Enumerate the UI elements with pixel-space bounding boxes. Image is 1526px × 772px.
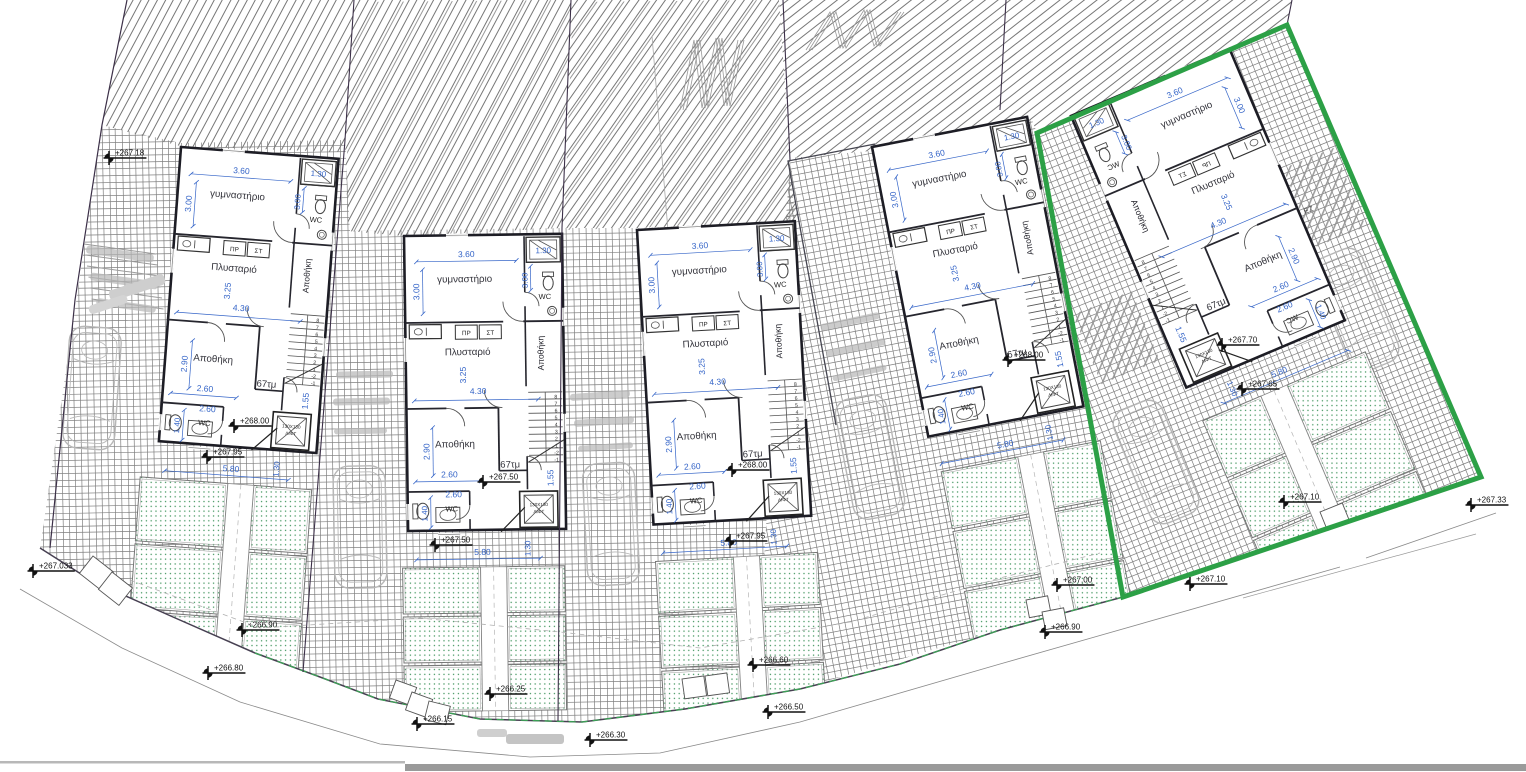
svg-text:1.30: 1.30 bbox=[272, 460, 282, 477]
svg-text:WC: WC bbox=[774, 280, 788, 290]
svg-text:+268.00: +268.00 bbox=[1014, 351, 1044, 360]
svg-text:+266.90: +266.90 bbox=[1051, 623, 1081, 632]
svg-text:67τμ: 67τμ bbox=[500, 459, 520, 470]
svg-text:5.80: 5.80 bbox=[474, 547, 491, 557]
svg-text:+268.00: +268.00 bbox=[738, 461, 768, 470]
svg-text:+267.65: +267.65 bbox=[1248, 380, 1278, 389]
svg-text:+267.50: +267.50 bbox=[489, 473, 519, 482]
svg-text:1.40: 1.40 bbox=[420, 505, 429, 521]
svg-text:130X130: 130X130 bbox=[774, 490, 793, 496]
svg-text:+267.95: +267.95 bbox=[736, 532, 766, 541]
svg-text:-1: -1 bbox=[796, 445, 801, 451]
svg-text:WC: WC bbox=[690, 496, 704, 506]
svg-text:ΛΙΦΤ: ΛΙΦΤ bbox=[285, 431, 296, 437]
svg-text:+266.30: +266.30 bbox=[596, 731, 626, 740]
svg-text:Αποθήκη: Αποθήκη bbox=[435, 439, 475, 451]
svg-text:Αποθήκη: Αποθήκη bbox=[535, 336, 545, 371]
svg-text:3.25: 3.25 bbox=[222, 282, 233, 300]
svg-text:Αποθήκη: Αποθήκη bbox=[676, 430, 716, 443]
svg-text:3.60: 3.60 bbox=[691, 240, 708, 251]
svg-text:3.00: 3.00 bbox=[183, 195, 194, 213]
svg-text:+267.95: +267.95 bbox=[213, 448, 243, 457]
svg-text:+266.25: +266.25 bbox=[496, 685, 526, 694]
svg-text:2.60: 2.60 bbox=[445, 489, 462, 499]
svg-text:2.60: 2.60 bbox=[689, 481, 706, 492]
svg-text:-2: -2 bbox=[554, 450, 559, 456]
svg-text:5: 5 bbox=[315, 339, 318, 345]
svg-text:+267.18: +267.18 bbox=[115, 149, 145, 158]
svg-text:γυμναστήριο: γυμναστήριο bbox=[437, 274, 493, 286]
svg-text:67τμ: 67τμ bbox=[256, 378, 277, 390]
svg-text:3: 3 bbox=[796, 417, 799, 423]
svg-text:+267.10: +267.10 bbox=[1290, 493, 1320, 502]
svg-text:+267.00: +267.00 bbox=[1063, 576, 1093, 585]
svg-text:ΣΤ: ΣΤ bbox=[254, 248, 262, 256]
svg-text:1.55: 1.55 bbox=[545, 469, 555, 486]
svg-text:+267.33: +267.33 bbox=[1477, 496, 1507, 505]
svg-text:2.60: 2.60 bbox=[199, 403, 217, 414]
svg-text:ΛΙΦΤ: ΛΙΦΤ bbox=[533, 509, 544, 514]
svg-text:2: 2 bbox=[313, 360, 316, 366]
svg-text:1.40: 1.40 bbox=[172, 417, 182, 434]
svg-text:WC: WC bbox=[445, 504, 458, 513]
svg-text:4: 4 bbox=[555, 422, 558, 428]
svg-text:ΛΙΦΤ: ΛΙΦΤ bbox=[778, 497, 789, 503]
svg-text:+267.033: +267.033 bbox=[39, 562, 73, 571]
svg-text:3.60: 3.60 bbox=[233, 165, 251, 176]
svg-text:Αποθήκη: Αποθήκη bbox=[772, 323, 784, 358]
svg-text:2: 2 bbox=[555, 436, 558, 442]
svg-text:+267.50: +267.50 bbox=[441, 536, 471, 545]
svg-text:1.30: 1.30 bbox=[523, 540, 532, 556]
svg-text:8: 8 bbox=[554, 394, 557, 400]
svg-text:3.00: 3.00 bbox=[646, 276, 657, 293]
svg-text:WC: WC bbox=[309, 215, 323, 225]
svg-text:-1: -1 bbox=[554, 457, 559, 463]
svg-text:-1: -1 bbox=[311, 381, 316, 387]
svg-text:4.30: 4.30 bbox=[470, 386, 487, 396]
svg-text:7: 7 bbox=[316, 325, 319, 331]
svg-text:8: 8 bbox=[316, 318, 319, 324]
svg-text:ΠΡ: ΠΡ bbox=[230, 246, 239, 254]
svg-text:+267.10: +267.10 bbox=[1196, 575, 1226, 584]
svg-text:4: 4 bbox=[795, 410, 798, 416]
svg-text:2.60: 2.60 bbox=[441, 469, 458, 479]
svg-text:-2: -2 bbox=[796, 438, 801, 444]
svg-text:5: 5 bbox=[555, 415, 558, 421]
svg-text:WC: WC bbox=[539, 292, 552, 301]
svg-text:3.60: 3.60 bbox=[458, 249, 475, 259]
svg-text:3: 3 bbox=[555, 429, 558, 435]
svg-text:1.30: 1.30 bbox=[769, 528, 779, 545]
svg-text:ΠΡ: ΠΡ bbox=[699, 321, 708, 328]
svg-text:3.25: 3.25 bbox=[696, 358, 707, 375]
svg-text:+266.15: +266.15 bbox=[423, 715, 453, 724]
svg-text:4.30: 4.30 bbox=[709, 376, 726, 387]
svg-text:6: 6 bbox=[795, 396, 798, 402]
svg-text:+266.50: +266.50 bbox=[774, 703, 804, 712]
svg-text:+267.70: +267.70 bbox=[1228, 336, 1258, 345]
svg-text:WC: WC bbox=[198, 418, 212, 428]
svg-text:5: 5 bbox=[795, 403, 798, 409]
svg-text:2.90: 2.90 bbox=[179, 355, 190, 373]
svg-text:Πλυσταριό: Πλυσταριό bbox=[445, 347, 491, 359]
svg-text:1.55: 1.55 bbox=[300, 392, 311, 410]
svg-text:2.90: 2.90 bbox=[663, 436, 674, 453]
svg-text:ΠΡ: ΠΡ bbox=[462, 330, 471, 337]
svg-text:1.30: 1.30 bbox=[310, 169, 327, 179]
svg-text:4: 4 bbox=[314, 346, 317, 352]
svg-text:2.60: 2.60 bbox=[684, 461, 701, 472]
svg-text:7: 7 bbox=[554, 401, 557, 407]
svg-text:1.55: 1.55 bbox=[788, 457, 799, 474]
svg-text:2.90: 2.90 bbox=[421, 443, 431, 460]
svg-text:2: 2 bbox=[796, 424, 799, 430]
svg-text:1.30: 1.30 bbox=[535, 246, 551, 255]
svg-text:1.40: 1.40 bbox=[665, 498, 675, 515]
svg-text:3: 3 bbox=[314, 353, 317, 359]
svg-text:ΣΤ: ΣΤ bbox=[486, 330, 494, 337]
svg-text:ΣΤ: ΣΤ bbox=[970, 223, 979, 231]
svg-text:3.00: 3.00 bbox=[755, 261, 765, 278]
svg-text:7: 7 bbox=[794, 389, 797, 395]
svg-text:3.00: 3.00 bbox=[411, 283, 421, 300]
svg-text:ΣΤ: ΣΤ bbox=[723, 320, 731, 327]
svg-text:-2: -2 bbox=[311, 374, 316, 380]
svg-text:1.30: 1.30 bbox=[769, 234, 786, 244]
svg-text:6: 6 bbox=[554, 408, 557, 414]
svg-text:3.25: 3.25 bbox=[458, 367, 468, 384]
svg-text:130X130: 130X130 bbox=[530, 502, 549, 507]
svg-text:8: 8 bbox=[794, 382, 797, 388]
svg-text:3.00: 3.00 bbox=[520, 272, 529, 288]
svg-text:4.30: 4.30 bbox=[232, 302, 250, 313]
svg-text:+266.80: +266.80 bbox=[214, 664, 244, 673]
svg-text:+268.00: +268.00 bbox=[240, 417, 270, 426]
svg-text:2.60: 2.60 bbox=[196, 383, 214, 394]
svg-text:6: 6 bbox=[315, 332, 318, 338]
svg-text:5.80: 5.80 bbox=[222, 463, 240, 474]
svg-text:+266.60: +266.60 bbox=[759, 656, 789, 665]
svg-text:3.00: 3.00 bbox=[293, 193, 303, 210]
svg-text:67τμ: 67τμ bbox=[742, 448, 762, 460]
